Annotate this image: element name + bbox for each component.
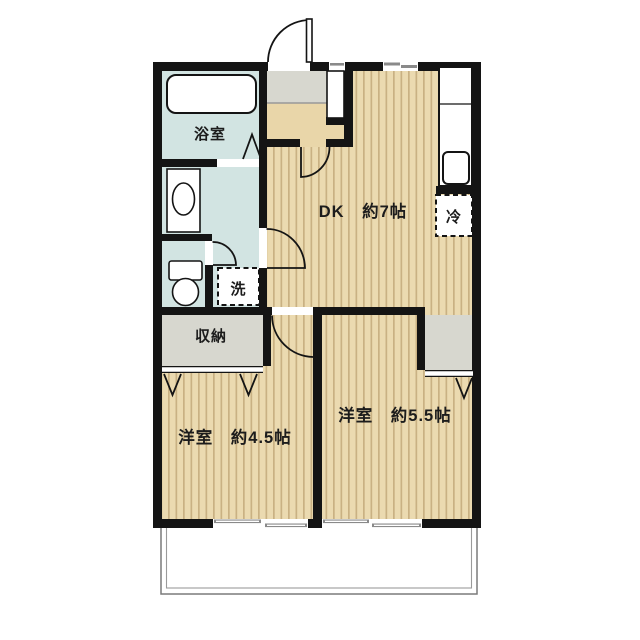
kitchen-sink — [443, 152, 469, 184]
bathtub — [167, 75, 256, 113]
toilet-tank — [169, 261, 202, 280]
entry-door-swing — [268, 20, 310, 62]
entry-opening — [268, 62, 310, 71]
wall-right — [472, 62, 481, 528]
wall-between-bedrooms — [313, 315, 322, 519]
vanity-basin — [173, 183, 195, 215]
bedroom-right-label: 洋室 約5.5帖 — [338, 405, 451, 425]
entry-door-leaf — [307, 19, 313, 62]
fridge-label: 冷 — [446, 208, 462, 226]
laundry-label: 洗 — [230, 280, 246, 298]
bathroom-label: 浴室 — [194, 125, 226, 143]
bedroom-left-label: 洋室 約4.5帖 — [178, 427, 291, 447]
floor-plan: 浴室 洗 収納 冷 DK 約7帖 洋室 約4.5帖 洋室 約5.5帖 — [0, 0, 640, 640]
balcony — [161, 524, 477, 594]
wall-left — [153, 62, 162, 528]
toilet-bowl — [173, 279, 199, 306]
dk-label: DK 約7帖 — [319, 201, 408, 221]
wall-bottom — [153, 519, 481, 528]
storage-label: 収納 — [195, 327, 227, 345]
wall-top — [153, 62, 481, 71]
shoe-cabinet — [327, 71, 344, 118]
closet-right-floor — [425, 315, 473, 370]
